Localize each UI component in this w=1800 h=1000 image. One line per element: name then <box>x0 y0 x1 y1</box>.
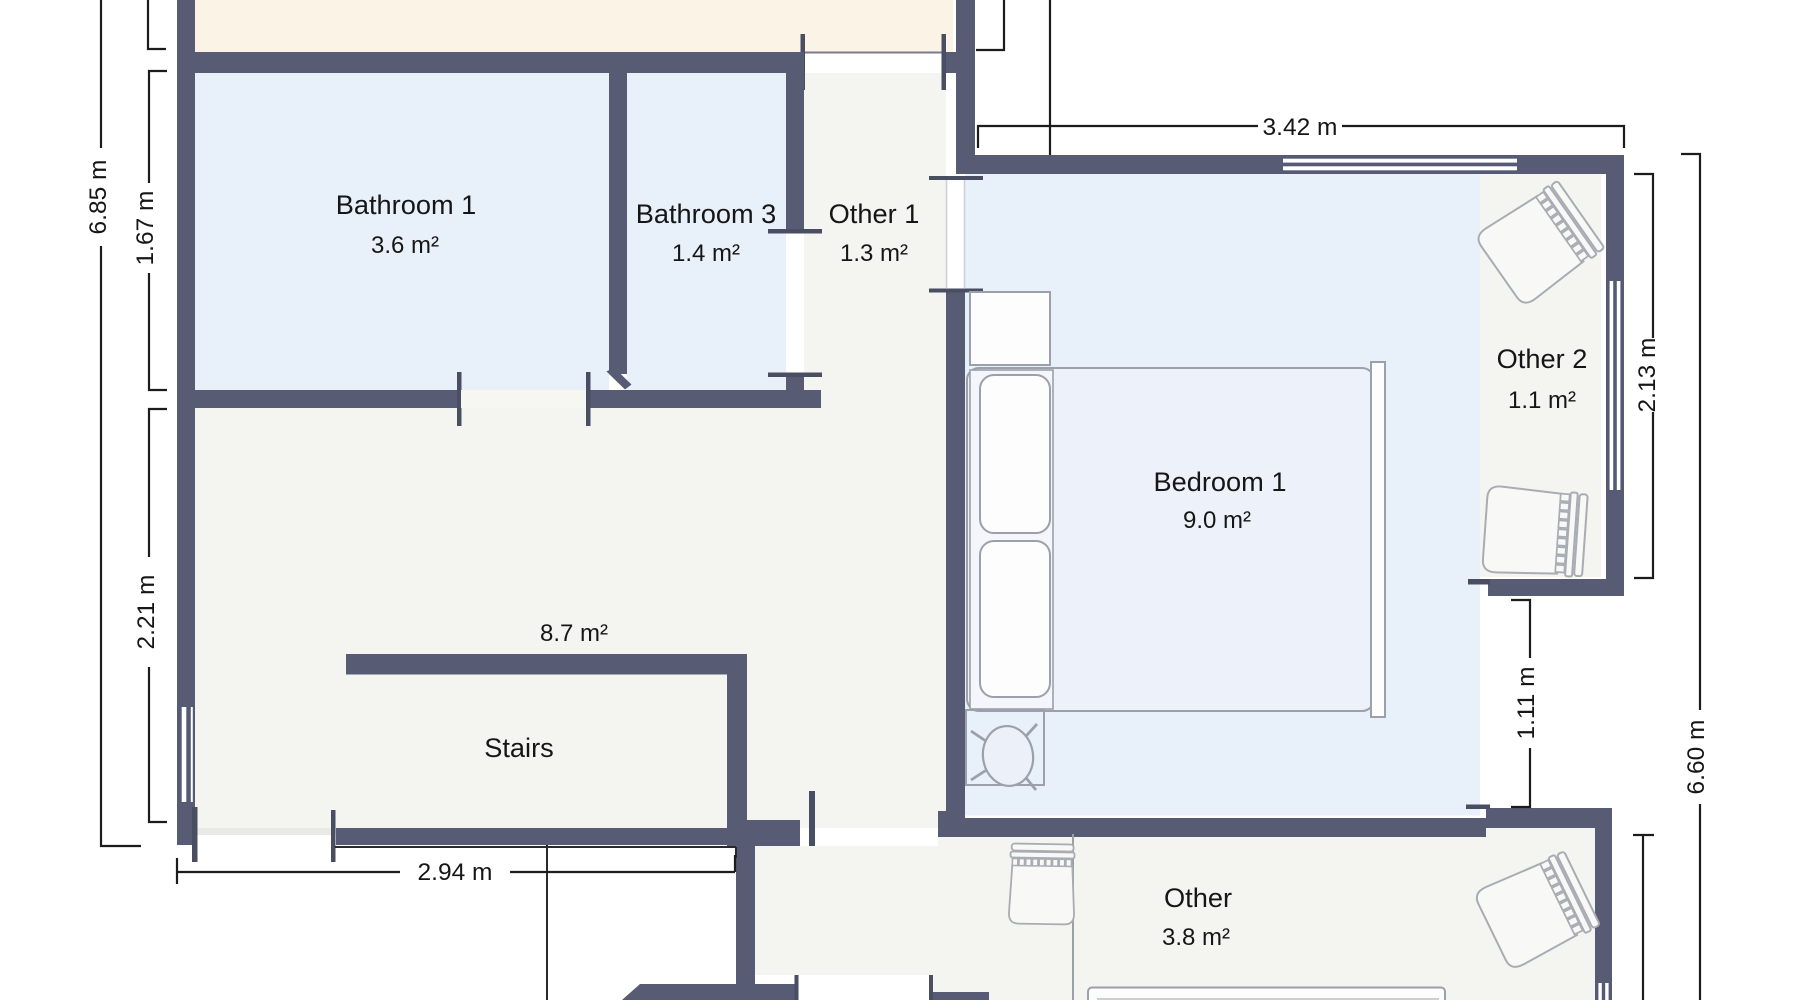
svg-text:1.11 m: 1.11 m <box>1513 666 1540 739</box>
svg-text:Stairs: Stairs <box>484 732 554 763</box>
svg-text:Bedroom 1: Bedroom 1 <box>1154 466 1287 497</box>
svg-text:1.1 m²: 1.1 m² <box>1508 387 1576 414</box>
svg-text:Other 2: Other 2 <box>1497 343 1588 374</box>
svg-text:2.21 m: 2.21 m <box>133 575 160 650</box>
svg-text:1.67 m: 1.67 m <box>132 191 159 266</box>
svg-text:1.4 m²: 1.4 m² <box>672 240 740 267</box>
svg-text:1.3 m²: 1.3 m² <box>840 240 908 267</box>
svg-text:Other 1: Other 1 <box>829 198 920 229</box>
svg-text:9.0 m²: 9.0 m² <box>1183 507 1251 534</box>
svg-text:3.8 m²: 3.8 m² <box>1162 924 1230 951</box>
svg-text:Bathroom 3: Bathroom 3 <box>636 198 777 229</box>
svg-text:6.85 m: 6.85 m <box>85 160 112 235</box>
svg-text:Bathroom 1: Bathroom 1 <box>336 189 477 220</box>
svg-text:8.7 m²: 8.7 m² <box>540 620 608 647</box>
svg-text:6.60 m: 6.60 m <box>1683 720 1710 795</box>
svg-text:3.6 m²: 3.6 m² <box>371 232 439 259</box>
svg-text:2.94 m: 2.94 m <box>418 859 493 886</box>
svg-text:3.42 m: 3.42 m <box>1263 114 1338 141</box>
svg-text:Other: Other <box>1164 882 1232 913</box>
svg-text:2.13 m: 2.13 m <box>1634 338 1661 413</box>
